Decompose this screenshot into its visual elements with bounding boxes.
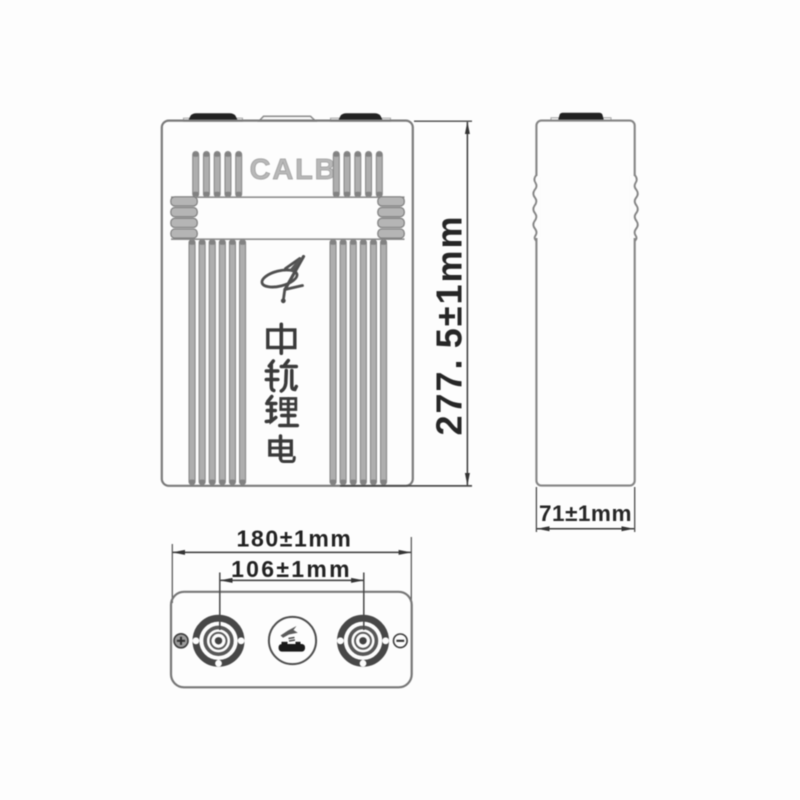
svg-text:180±1mm: 180±1mm [237,526,353,552]
svg-text:71±1mm: 71±1mm [539,501,632,526]
svg-text:106±1mm: 106±1mm [231,556,352,582]
svg-text:277. 5±1mm: 277. 5±1mm [429,214,470,435]
svg-text:CALB: CALB [250,154,338,186]
